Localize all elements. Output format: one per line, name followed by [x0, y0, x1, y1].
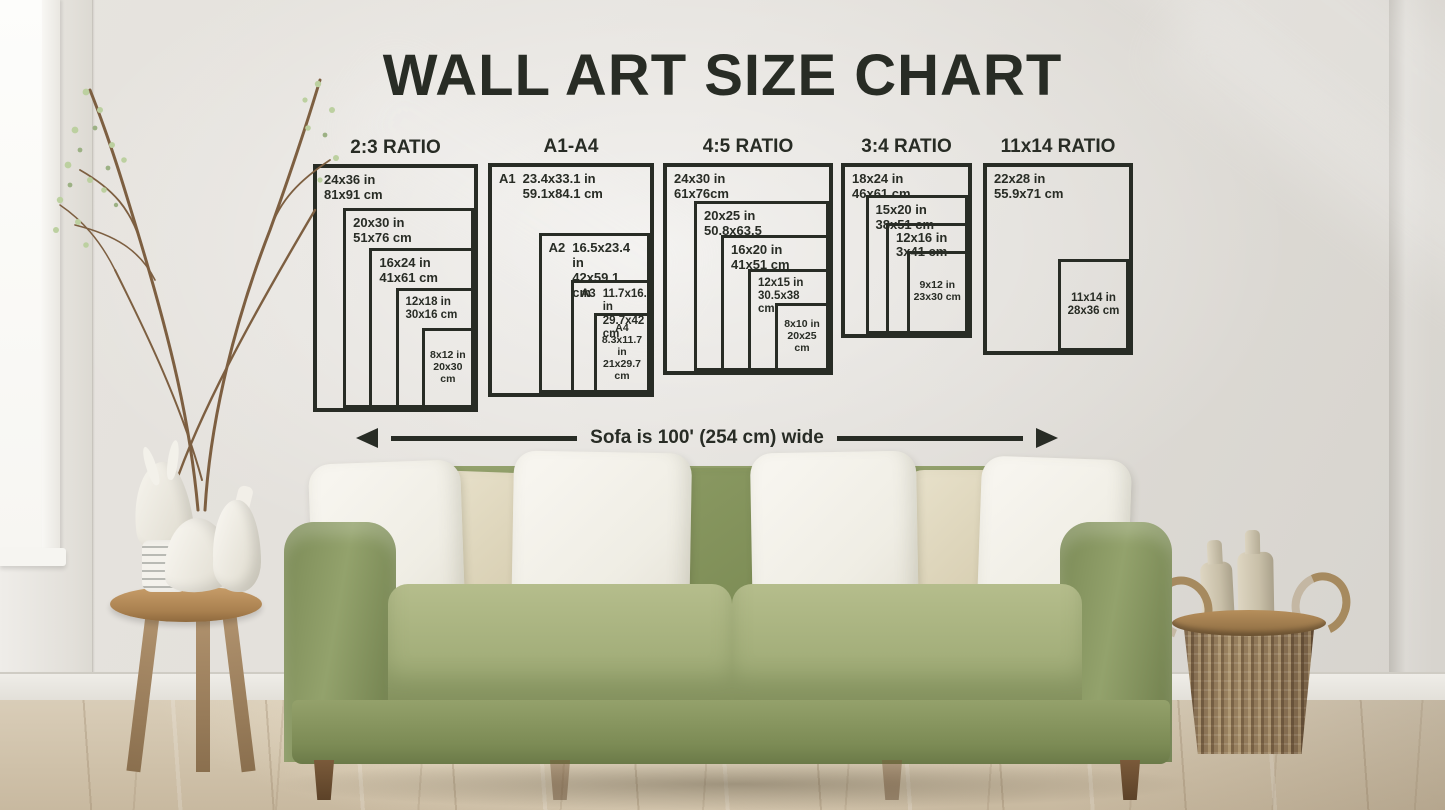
basket-rim: [1172, 610, 1326, 636]
arrow-right-icon: [1036, 428, 1058, 448]
size-label: A48.3x11.7 in21x29.7 cm: [597, 316, 647, 390]
size-label: 22x28 in55.9x71 cm: [987, 167, 1070, 207]
size-box-9x12in: 9x12 in23x30 cm: [907, 251, 969, 335]
size-label: A123.4x33.1 in59.1x84.1 cm: [492, 167, 610, 207]
group-header: 4:5 RATIO: [703, 136, 793, 158]
size-box-24x30in: 4:5 RATIO 24x30 in61x76cm20x25 in50.8x63…: [663, 163, 833, 375]
size-label: 16x24 in41x61 cm: [372, 251, 445, 291]
size-box-8x12in: 8x12 in20x30 cm: [422, 328, 474, 408]
size-label: 8x12 in20x30 cm: [425, 331, 471, 405]
sofa-base: [292, 700, 1170, 764]
arrow-line: [837, 436, 1023, 441]
size-box-23.4x33.1in: A1-A4 A123.4x33.1 in59.1x84.1 cmA216.5x2…: [488, 163, 654, 397]
room-scene: WALL ART SIZE CHART 2:3 RATIO 24x36 in81…: [0, 0, 1445, 810]
size-box-8.3x11.7in: A48.3x11.7 in21x29.7 cm: [594, 313, 650, 393]
sofa-width-annotation: Sofa is 100' (254 cm) wide: [356, 424, 1058, 452]
size-box-18x24in: 3:4 RATIO 18x24 in46x61 cm15x20 in38x51 …: [841, 163, 972, 338]
group-header: 3:4 RATIO: [861, 136, 951, 158]
size-box-11x14in: 11x14 in28x36 cm: [1058, 259, 1129, 351]
size-box-8x10in: 8x10 in20x25 cm: [775, 303, 829, 371]
seat-cushion-right: [732, 584, 1082, 712]
sofa-shadow: [270, 758, 1200, 810]
size-box-22x28in: 11x14 RATIO 22x28 in55.9x71 cm11x14 in28…: [983, 163, 1133, 355]
group-header: A1-A4: [544, 136, 599, 158]
arrow-line: [391, 436, 577, 441]
window-sill: [0, 548, 66, 566]
size-label: 11x14 in28x36 cm: [1061, 262, 1126, 348]
sofa-width-label: Sofa is 100' (254 cm) wide: [590, 427, 824, 449]
size-label: 8x10 in20x25 cm: [778, 306, 826, 368]
group-header: 11x14 RATIO: [1001, 136, 1116, 158]
seat-cushion-left: [388, 584, 732, 712]
size-label: 9x12 in23x30 cm: [910, 254, 966, 332]
wicker-basket: [1178, 626, 1320, 758]
table-leg: [196, 614, 210, 772]
group-header: 2:3 RATIO: [350, 137, 440, 159]
size-label: 12x18 in30x16 cm: [399, 291, 465, 327]
branch-plant: [20, 40, 360, 540]
